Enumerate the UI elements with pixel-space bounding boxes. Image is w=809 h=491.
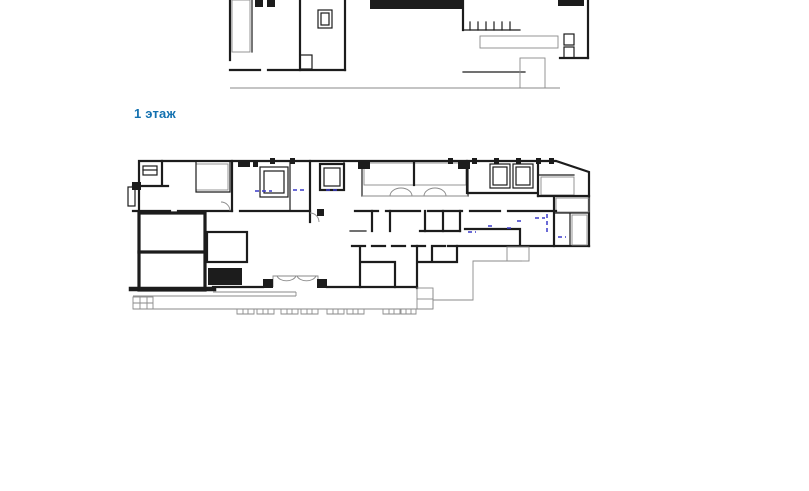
- center-lower-rooms: [360, 246, 457, 288]
- entrance-lobby-steps: [358, 160, 470, 196]
- right-top-rooms: [467, 161, 589, 246]
- page: 1 этаж: [0, 0, 809, 491]
- left-rooms-and-walls: [128, 161, 344, 290]
- upper-floor-fragment: [230, 0, 588, 88]
- floor-plan-drawing: [0, 0, 809, 491]
- entrance-porch: [263, 276, 327, 288]
- terrace-outline: [133, 261, 522, 309]
- ramp-hatch: [572, 215, 587, 245]
- parking-markers: [237, 309, 416, 314]
